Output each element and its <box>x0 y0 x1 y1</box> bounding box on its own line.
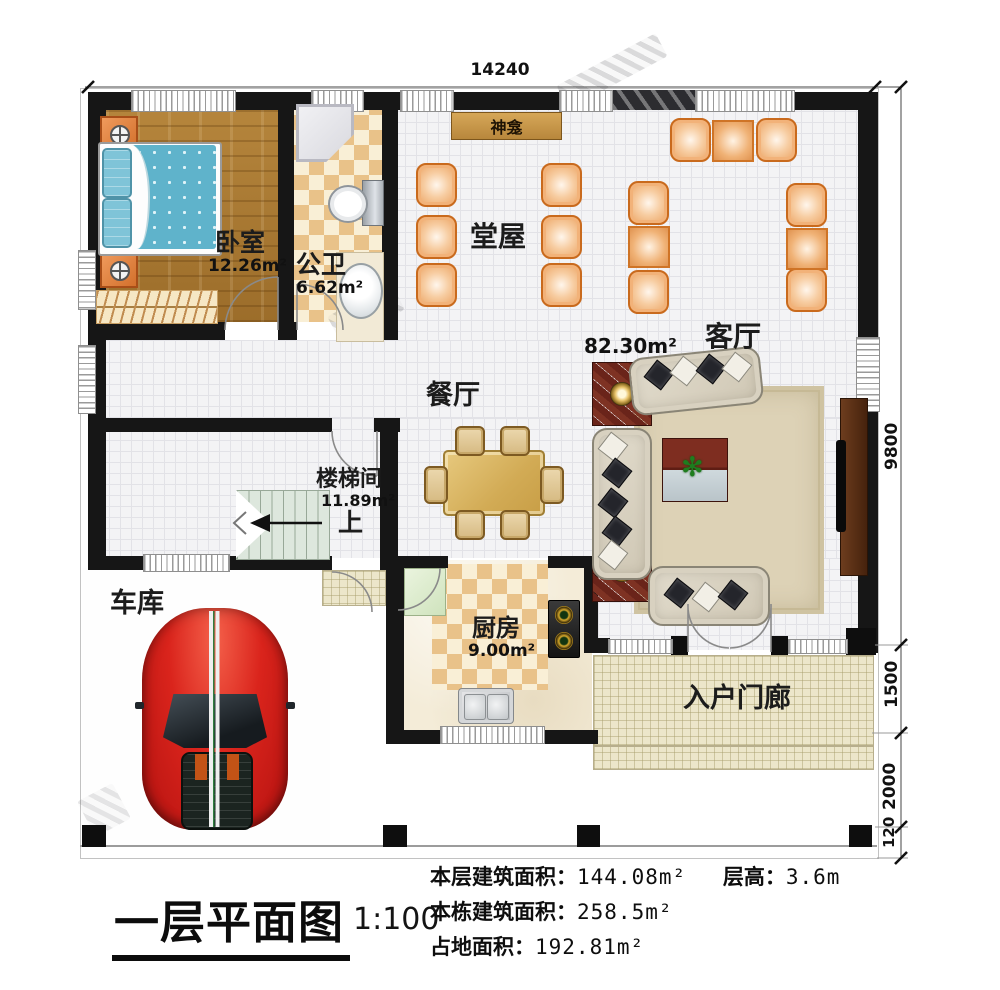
hall-chair <box>628 270 669 314</box>
living-label: 客厅 <box>705 322 761 351</box>
dim-right-porch: 1500 <box>882 661 902 708</box>
wall-kitchen-top-a <box>404 556 448 568</box>
glass-panel-top <box>613 90 695 110</box>
wall-bed-bath-divider <box>278 100 294 324</box>
hall-chair <box>416 215 457 259</box>
hall-chair <box>756 118 797 162</box>
pillar <box>577 825 600 847</box>
window-top-hall-1 <box>400 90 454 112</box>
kitchen-label: 厨房 <box>472 616 520 641</box>
hall-chair <box>541 215 582 259</box>
door-pillar-right <box>771 636 788 655</box>
stat-value: 3.6m <box>786 865 841 889</box>
stats-line-3: 占地面积：192.81m² <box>430 930 840 965</box>
burner-icon <box>555 632 573 650</box>
stats-block: 本层建筑面积：144.08m² 层高：3.6m 本栋建筑面积：258.5m² 占… <box>430 860 840 965</box>
stats-line-2: 本栋建筑面积：258.5m² <box>430 895 840 930</box>
dining-chair <box>424 466 448 504</box>
window-stair-bottom <box>143 554 230 572</box>
plan-scale: 1:100 <box>353 902 439 937</box>
dining-chair <box>455 426 485 456</box>
bed-pillow <box>102 198 132 248</box>
bathroom-label: 公卫 <box>296 252 346 278</box>
fridge <box>404 568 446 616</box>
wall-bath-right <box>382 100 398 340</box>
stair-up-label: 上 <box>338 510 363 536</box>
wall-stair-top <box>88 418 332 432</box>
hall-chair <box>786 268 827 312</box>
kitchen-area: 9.00m² <box>468 641 535 661</box>
bedroom-label: 卧室 <box>215 230 265 256</box>
floor-plan: 神龛 ✻ <box>0 0 1000 990</box>
hall-chair <box>670 118 711 162</box>
hall-chair <box>786 183 827 227</box>
hall-chair <box>541 263 582 307</box>
stat-label: 本栋建筑面积： <box>430 900 577 924</box>
dining-label: 餐厅 <box>426 382 480 410</box>
dining-table <box>443 450 545 516</box>
stairwell-label: 楼梯间 <box>316 468 382 491</box>
tv-icon <box>836 440 846 532</box>
pillar <box>849 825 872 847</box>
dining-chair <box>455 510 485 540</box>
sink-basin-icon <box>464 694 486 720</box>
plan-title: 一层平面图 <box>112 886 350 961</box>
window-kitchen-bottom <box>440 726 545 744</box>
car-mirror <box>135 702 144 709</box>
dining-chair <box>540 466 564 504</box>
window-top-hall-2 <box>559 90 613 112</box>
window-left-bedroom <box>78 250 96 310</box>
shrine-label: 神龛 <box>490 114 522 138</box>
dim-right-main: 9800 <box>882 423 902 470</box>
window-left-corridor <box>78 345 96 414</box>
wall-bedroom-bottom <box>88 322 225 340</box>
gas-stove <box>548 600 580 658</box>
kitchen-sink <box>458 688 514 724</box>
porch-step-line <box>594 745 873 747</box>
stat-value: 192.81m² <box>535 935 644 959</box>
car <box>142 608 288 830</box>
dining-chair <box>500 426 530 456</box>
window-entry-right <box>788 639 848 654</box>
sink-basin-icon <box>487 694 509 720</box>
living-area: 82.30m² <box>584 334 677 358</box>
bedroom-area: 12.26m² <box>208 256 287 276</box>
stat-value: 144.08m² <box>577 865 686 889</box>
dim-right-front: 2000 <box>880 763 900 810</box>
hall-tea-table <box>786 228 828 270</box>
hall-tea-table <box>628 226 670 268</box>
wall-kitchen-left <box>386 556 404 744</box>
pillar <box>383 825 407 847</box>
stat-value: 258.5m² <box>577 900 673 924</box>
nightstand <box>100 252 138 288</box>
car-racing-stripe <box>208 611 222 827</box>
wall-bedbath-bottom <box>278 322 297 340</box>
pillar <box>82 825 106 847</box>
hall-chair <box>628 181 669 225</box>
plant-icon: ✻ <box>681 452 704 483</box>
window-top-right <box>695 90 795 112</box>
hall-chair <box>541 163 582 207</box>
landing-step <box>322 570 386 606</box>
stat-label: 本层建筑面积： <box>430 865 577 889</box>
toilet-bowl <box>328 185 368 223</box>
door-pillar-left <box>671 636 688 655</box>
hall-chair <box>416 163 457 207</box>
bathroom-area: 6.62m² <box>296 278 363 298</box>
bed-pillow <box>102 148 132 198</box>
stat-label: 层高： <box>723 865 786 889</box>
window-top-bedroom <box>131 90 236 112</box>
porch-label: 入户门廊 <box>683 685 791 713</box>
nightstand-knob-icon <box>110 261 130 281</box>
dining-chair <box>500 510 530 540</box>
porch-corner-pillar <box>846 628 876 655</box>
hall-chair <box>416 263 457 307</box>
plot-bottom-line <box>80 845 877 847</box>
bedroom-rug <box>96 290 218 324</box>
car-mirror <box>286 702 295 709</box>
garage-label: 车库 <box>110 590 164 618</box>
hall-tea-table <box>712 120 754 162</box>
dim-top-width: 14240 <box>455 60 545 80</box>
shrine-cabinet: 神龛 <box>451 112 562 140</box>
stat-label: 占地面积： <box>430 935 535 959</box>
dim-right-edge: 120 <box>880 817 898 848</box>
window-entry-left <box>608 639 673 654</box>
stats-line-1: 本层建筑面积：144.08m² 层高：3.6m <box>430 860 840 895</box>
burner-icon <box>555 606 573 624</box>
hall-label: 堂屋 <box>470 222 526 251</box>
